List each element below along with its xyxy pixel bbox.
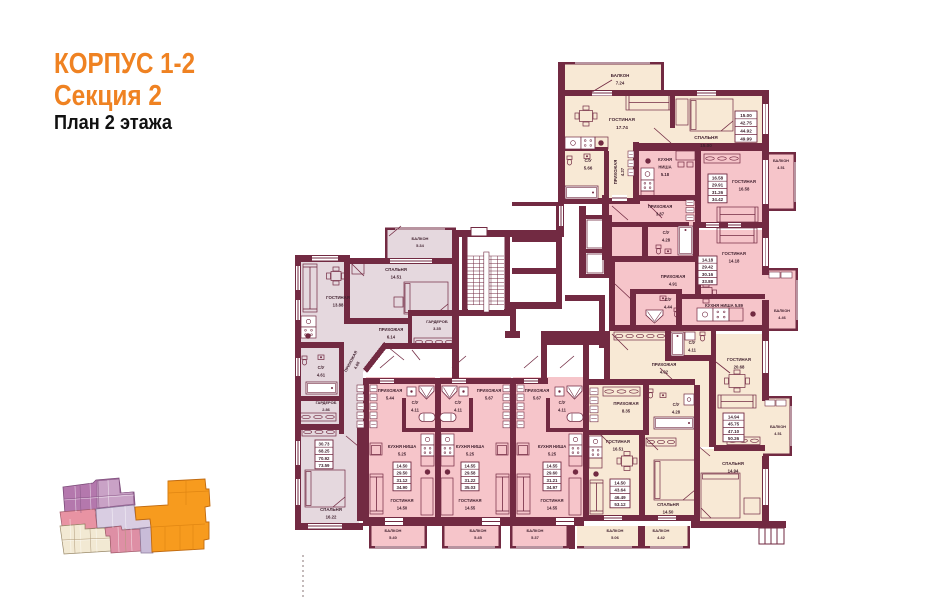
svg-text:5.25: 5.25 (398, 452, 407, 457)
svg-text:16.58: 16.58 (712, 175, 724, 180)
svg-text:5.25: 5.25 (466, 452, 475, 457)
svg-text:31.21: 31.21 (547, 478, 559, 483)
svg-text:БАЛКОН: БАЛКОН (770, 425, 786, 429)
svg-text:СПАЛЬНЯ: СПАЛЬНЯ (385, 267, 407, 272)
svg-text:14.18: 14.18 (702, 257, 714, 262)
svg-text:44.92: 44.92 (740, 128, 752, 133)
svg-text:4.11: 4.11 (688, 348, 697, 353)
svg-text:14.55: 14.55 (465, 506, 476, 511)
svg-text:5.34: 5.34 (416, 243, 425, 248)
svg-text:17.74: 17.74 (616, 125, 628, 130)
svg-text:50.26: 50.26 (728, 436, 740, 441)
svg-text:31.22: 31.22 (465, 478, 477, 483)
svg-text:БАЛКОН: БАЛКОН (773, 159, 789, 163)
svg-text:29.42: 29.42 (702, 265, 714, 270)
svg-text:ГОСТИНАЯ: ГОСТИНАЯ (540, 498, 563, 503)
svg-text:34.90: 34.90 (397, 485, 409, 490)
svg-text:30.73: 30.73 (319, 441, 331, 446)
svg-text:ПРИХОЖАЯ: ПРИХОЖАЯ (378, 388, 403, 393)
svg-text:14.50: 14.50 (614, 480, 626, 485)
svg-text:С/У: С/У (318, 365, 325, 370)
svg-text:20.68: 20.68 (734, 365, 745, 370)
svg-text:КУХНЯ: КУХНЯ (658, 157, 672, 162)
svg-text:ГАРДЕРОБ: ГАРДЕРОБ (316, 400, 337, 405)
svg-text:Секция 2: Секция 2 (54, 80, 162, 112)
svg-text:План 2 этажа: План 2 этажа (54, 112, 173, 134)
svg-text:ПРИХОЖАЯ: ПРИХОЖАЯ (613, 401, 638, 406)
svg-text:29.50: 29.50 (397, 471, 409, 476)
svg-text:4.28: 4.28 (662, 238, 671, 243)
svg-text:КУХНЯ НИША: КУХНЯ НИША (388, 444, 417, 449)
svg-text:КУХНЯ НИША: КУХНЯ НИША (456, 444, 485, 449)
svg-text:6.14: 6.14 (387, 335, 396, 340)
svg-text:4.37: 4.37 (620, 167, 625, 176)
svg-text:14.50: 14.50 (397, 506, 408, 511)
svg-text:7.24: 7.24 (616, 81, 625, 86)
svg-text:3.35: 3.35 (433, 326, 442, 331)
svg-text:КОРПУС 1-2: КОРПУС 1-2 (54, 48, 195, 80)
svg-text:35.03: 35.03 (465, 485, 477, 490)
svg-text:5.18: 5.18 (661, 172, 670, 177)
svg-text:14.51: 14.51 (391, 275, 402, 280)
svg-text:14.50: 14.50 (397, 463, 409, 468)
svg-text:4.61: 4.61 (317, 373, 326, 378)
svg-text:68.25: 68.25 (319, 449, 331, 454)
svg-text:4.11: 4.11 (454, 408, 463, 413)
svg-text:15.00: 15.00 (700, 143, 712, 148)
svg-text:4.28: 4.28 (672, 410, 681, 415)
svg-text:КУХНЯ НИША 5.89: КУХНЯ НИША 5.89 (705, 303, 744, 308)
svg-text:14.55: 14.55 (547, 463, 559, 468)
svg-text:ПРИХОЖАЯ: ПРИХОЖАЯ (661, 274, 686, 279)
svg-text:ГАРДЕРОБ: ГАРДЕРОБ (426, 319, 448, 324)
svg-text:5.67: 5.67 (485, 396, 494, 401)
svg-text:КУХНЯ НИША: КУХНЯ НИША (538, 444, 567, 449)
svg-text:13.88: 13.88 (333, 303, 344, 308)
svg-text:ГОСТИНАЯ: ГОСТИНАЯ (606, 439, 630, 444)
svg-text:5.25: 5.25 (548, 452, 557, 457)
svg-text:34.97: 34.97 (547, 485, 559, 490)
svg-text:5.45: 5.45 (474, 535, 483, 540)
svg-text:3.87: 3.87 (656, 212, 665, 217)
svg-text:СПАЛЬНЯ: СПАЛЬНЯ (320, 507, 342, 512)
svg-text:5.67: 5.67 (533, 396, 542, 401)
svg-text:70.92: 70.92 (319, 456, 331, 461)
svg-text:СПАЛЬНЯ: СПАЛЬНЯ (694, 135, 718, 140)
svg-text:31.26: 31.26 (712, 190, 724, 195)
svg-text:29.58: 29.58 (465, 471, 477, 476)
svg-text:31.12: 31.12 (397, 478, 409, 483)
svg-text:ГОСТИНАЯ: ГОСТИНАЯ (458, 498, 481, 503)
svg-text:СПАЛЬНЯ: СПАЛЬНЯ (657, 502, 679, 507)
svg-text:14.18: 14.18 (729, 259, 740, 264)
svg-text:8.35: 8.35 (622, 409, 631, 414)
svg-text:30.16: 30.16 (702, 272, 714, 277)
svg-text:ГОСТИНАЯ: ГОСТИНАЯ (727, 357, 751, 362)
svg-text:15.00: 15.00 (740, 113, 752, 118)
svg-text:33.88: 33.88 (702, 279, 714, 284)
svg-text:4.42: 4.42 (657, 535, 666, 540)
svg-text:С/У: С/У (665, 297, 672, 302)
svg-text:4.02: 4.02 (660, 370, 669, 375)
svg-text:ПРИХОЖАЯ: ПРИХОЖАЯ (477, 388, 502, 393)
svg-text:4.91: 4.91 (669, 282, 678, 287)
svg-text:С/У: С/У (689, 340, 696, 345)
svg-text:ПРИХОЖАЯ: ПРИХОЖАЯ (379, 327, 404, 332)
svg-text:НИША: НИША (658, 165, 671, 170)
svg-text:5.37: 5.37 (531, 535, 540, 540)
svg-text:С/У: С/У (412, 400, 419, 405)
svg-text:С/У: С/У (559, 400, 566, 405)
svg-text:14.55: 14.55 (547, 506, 558, 511)
svg-text:43.64: 43.64 (614, 488, 626, 493)
svg-text:БАЛКОН: БАЛКОН (527, 528, 544, 533)
svg-text:53.12: 53.12 (614, 502, 626, 507)
svg-text:16.22: 16.22 (326, 515, 337, 520)
svg-text:ГОСТИНАЯ: ГОСТИНАЯ (326, 295, 350, 300)
svg-text:14.50: 14.50 (663, 510, 674, 515)
svg-text:14.94: 14.94 (728, 469, 739, 474)
svg-text:29.60: 29.60 (547, 471, 559, 476)
svg-text:4.44: 4.44 (664, 305, 673, 310)
svg-text:БАЛКОН: БАЛКОН (607, 528, 624, 533)
svg-text:ГОСТИНАЯ: ГОСТИНАЯ (390, 498, 413, 503)
svg-text:С/У: С/У (584, 158, 591, 163)
svg-text:49.99: 49.99 (740, 136, 752, 141)
svg-text:16.51: 16.51 (613, 447, 624, 452)
svg-text:ГОСТИНАЯ: ГОСТИНАЯ (609, 117, 636, 122)
svg-text:42.75: 42.75 (740, 121, 752, 126)
svg-text:БАЛКОН: БАЛКОН (412, 236, 429, 241)
svg-text:БАЛКОН: БАЛКОН (611, 73, 630, 78)
svg-text:73.59: 73.59 (319, 463, 331, 468)
svg-text:БАЛКОН: БАЛКОН (470, 528, 487, 533)
svg-text:5.40: 5.40 (389, 535, 398, 540)
svg-text:14.94: 14.94 (728, 414, 740, 419)
svg-text:БАЛКОН: БАЛКОН (653, 528, 670, 533)
svg-text:2.86: 2.86 (322, 407, 330, 412)
svg-text:4.11: 4.11 (558, 408, 567, 413)
svg-text:ГОСТИНАЯ: ГОСТИНАЯ (722, 251, 746, 256)
svg-text:34.42: 34.42 (712, 197, 724, 202)
svg-text:ПРИХОЖАЯ: ПРИХОЖАЯ (613, 160, 618, 185)
svg-text:ПРИХОЖАЯ: ПРИХОЖАЯ (525, 388, 550, 393)
svg-text:4.46: 4.46 (778, 316, 785, 320)
svg-text:С/У: С/У (663, 230, 670, 235)
svg-text:29.91: 29.91 (712, 183, 724, 188)
svg-text:45.75: 45.75 (728, 422, 740, 427)
svg-text:ПРИХОЖАЯ: ПРИХОЖАЯ (648, 204, 673, 209)
svg-text:5.06: 5.06 (611, 535, 620, 540)
svg-text:47.10: 47.10 (728, 429, 740, 434)
svg-text:4.11: 4.11 (411, 408, 420, 413)
svg-text:ГОСТИНАЯ: ГОСТИНАЯ (732, 179, 756, 184)
svg-text:16.58: 16.58 (739, 187, 750, 192)
svg-text:С/У: С/У (455, 400, 462, 405)
svg-text:ПРИХОЖАЯ: ПРИХОЖАЯ (652, 362, 677, 367)
svg-text:БАЛКОН: БАЛКОН (385, 528, 402, 533)
svg-text:БАЛКОН: БАЛКОН (774, 309, 790, 313)
svg-text:4.51: 4.51 (774, 432, 781, 436)
svg-text:46.49: 46.49 (614, 495, 626, 500)
svg-text:5.66: 5.66 (584, 166, 593, 171)
svg-text:5.44: 5.44 (386, 396, 395, 401)
svg-text:С/У: С/У (673, 402, 680, 407)
svg-text:СПАЛЬНЯ: СПАЛЬНЯ (722, 461, 744, 466)
svg-text:4.51: 4.51 (777, 166, 784, 170)
svg-text:14.55: 14.55 (465, 463, 477, 468)
